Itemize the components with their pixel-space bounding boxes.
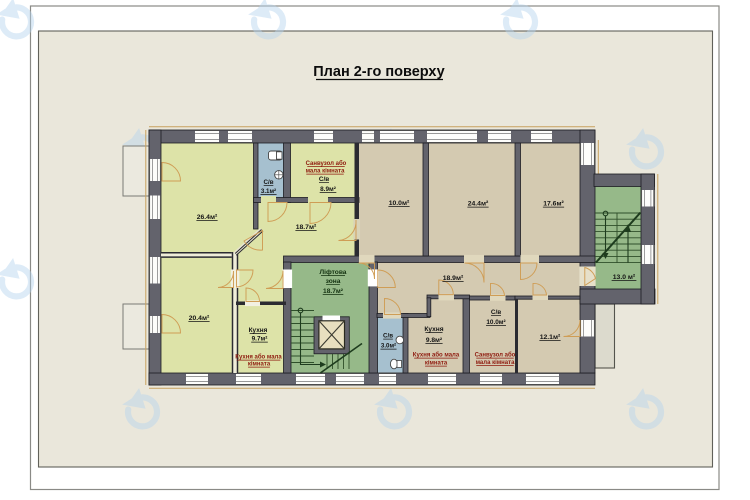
svg-text:кімната: кімната [248,362,271,368]
svg-text:8.9м²: 8.9м² [320,186,336,193]
svg-text:зона: зона [326,278,341,285]
svg-text:18.7м²: 18.7м² [323,288,344,295]
svg-text:12.1м²: 12.1м² [540,334,561,341]
svg-text:20.4м²: 20.4м² [189,315,210,322]
svg-text:С/в: С/в [383,333,393,340]
svg-text:13.0 м²: 13.0 м² [613,274,636,281]
svg-text:9.7м²: 9.7м² [252,336,268,343]
svg-text:3.1м²: 3.1м² [261,188,276,195]
svg-text:Кухня: Кухня [249,327,268,334]
svg-text:кімната: кімната [425,361,448,367]
svg-text:10.0м²: 10.0м² [486,319,505,326]
svg-text:26.4м²: 26.4м² [197,214,218,221]
svg-text:24.4м²: 24.4м² [468,201,489,208]
svg-text:3.0м²: 3.0м² [381,343,396,350]
svg-text:Санвузол або: Санвузол або [475,352,516,359]
svg-text:10.0м²: 10.0м² [389,200,410,207]
svg-text:С/в: С/в [319,176,329,183]
svg-text:Кухня або мала: Кухня або мала [235,354,282,361]
svg-text:План 2-го поверху: План 2-го поверху [313,64,444,80]
svg-text:9.8м²: 9.8м² [426,337,443,344]
svg-text:Кухня: Кухня [424,326,443,333]
svg-text:С/в: С/в [491,309,501,316]
svg-text:мала кімната: мала кімната [306,169,346,175]
svg-text:17.6м²: 17.6м² [543,201,564,208]
svg-text:С/в: С/в [264,179,274,186]
svg-text:18.7м²: 18.7м² [296,224,317,231]
svg-text:мала кімната: мала кімната [476,360,516,366]
svg-text:18.9м²: 18.9м² [443,275,464,282]
svg-text:Ліфтова: Ліфтова [320,268,347,276]
svg-text:Кухня або мала: Кухня або мала [413,352,460,359]
svg-text:Санвузол або: Санвузол або [306,160,347,167]
